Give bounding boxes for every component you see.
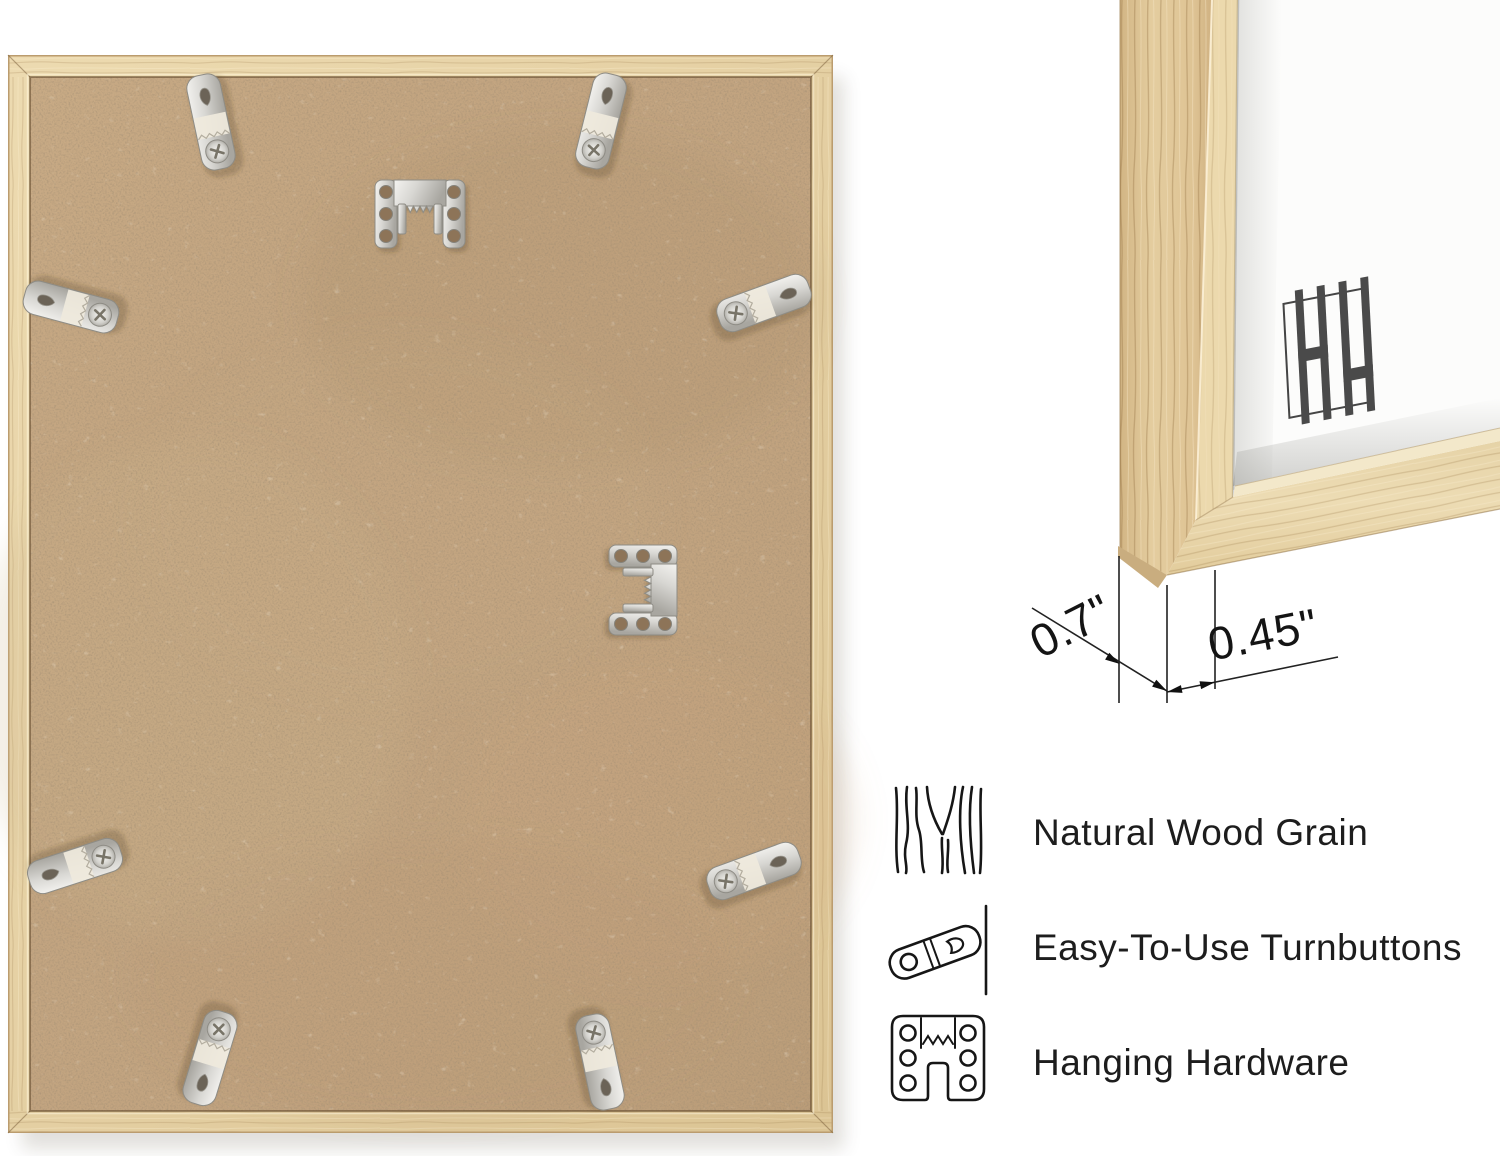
face-dimension-label: 0.45" bbox=[1204, 598, 1323, 670]
feature-list: Natural Wood Grain Easy-To-Use Turnbutto… bbox=[886, 787, 1462, 1100]
feature-row-hanging-hardware: Hanging Hardware bbox=[892, 1016, 1350, 1100]
hanging-hardware-icon bbox=[892, 1016, 984, 1100]
turnbutton-icon bbox=[886, 906, 986, 994]
dimension-arrowheads bbox=[1105, 653, 1215, 693]
feature-row-turnbuttons: Easy-To-Use Turnbuttons bbox=[886, 906, 1462, 994]
feature-label-hanging-hardware: Hanging Hardware bbox=[1033, 1042, 1350, 1083]
wood-grain-icon bbox=[896, 787, 981, 873]
feature-row-wood-grain: Natural Wood Grain bbox=[896, 787, 1368, 873]
infographic-canvas: 0.7" 0.45" Natural Wood Grain bbox=[0, 0, 1500, 1156]
frame-corner-closeup bbox=[1118, 0, 1500, 588]
frame-back-photo bbox=[0, 55, 860, 1149]
product-infographic: 0.7" 0.45" Natural Wood Grain bbox=[0, 0, 1500, 1156]
depth-dimension-label: 0.7" bbox=[1021, 583, 1120, 668]
feature-label-wood-grain: Natural Wood Grain bbox=[1033, 812, 1368, 853]
feature-label-turnbuttons: Easy-To-Use Turnbuttons bbox=[1033, 927, 1462, 968]
mdf-backing-board bbox=[0, 75, 860, 1121]
